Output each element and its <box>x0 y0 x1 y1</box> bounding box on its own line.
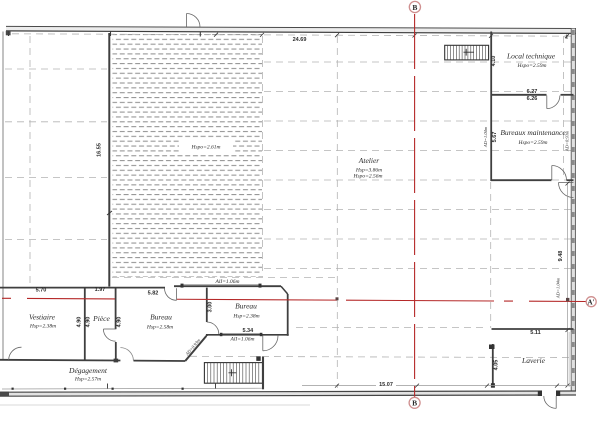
svg-text:1.97: 1.97 <box>95 287 106 293</box>
svg-text:B: B <box>412 3 417 12</box>
svg-text:5.82: 5.82 <box>148 291 159 297</box>
svg-text:4.90: 4.90 <box>116 317 122 328</box>
svg-text:4.90: 4.90 <box>77 317 83 328</box>
svg-text:Pièce: Pièce <box>92 314 110 323</box>
svg-text:9.48: 9.48 <box>558 251 564 262</box>
svg-text:6.27: 6.27 <box>527 89 538 95</box>
svg-text:B: B <box>412 399 417 408</box>
svg-text:4.05: 4.05 <box>494 360 500 371</box>
svg-text:Local technique: Local technique <box>506 52 556 61</box>
svg-text:3.00: 3.00 <box>207 302 213 313</box>
svg-text:Laverie: Laverie <box>521 356 546 365</box>
svg-text:16.55: 16.55 <box>97 143 103 157</box>
svg-text:AD=0.93m: AD=0.93m <box>565 130 570 152</box>
svg-text:AlI=1.06m: AlI=1.06m <box>229 337 254 343</box>
svg-text:A': A' <box>588 298 595 306</box>
svg-text:5.70: 5.70 <box>36 288 47 294</box>
svg-text:Hsp=2.38m: Hsp=2.38m <box>29 324 56 330</box>
svg-text:Hsp=2.57m: Hsp=2.57m <box>74 377 101 383</box>
svg-text:AD=1.04m: AD=1.04m <box>556 277 561 299</box>
svg-text:4.90: 4.90 <box>86 317 92 328</box>
svg-text:15.07: 15.07 <box>379 382 393 388</box>
svg-text:Hsp=2.58m: Hsp=2.58m <box>146 325 173 331</box>
svg-text:5.11: 5.11 <box>530 330 540 336</box>
svg-text:Hspo=2.59m: Hspo=2.59m <box>517 63 547 69</box>
svg-text:AlI=1.06m: AlI=1.06m <box>214 279 239 285</box>
svg-text:AD=1.04m: AD=1.04m <box>483 126 488 148</box>
svg-text:Bureau: Bureau <box>235 302 257 311</box>
svg-text:Hspo=2.61m: Hspo=2.61m <box>191 145 221 151</box>
svg-text:5.67: 5.67 <box>492 132 498 143</box>
svg-text:Hspo=2.56m: Hspo=2.56m <box>353 174 383 180</box>
svg-text:Vestiaire: Vestiaire <box>29 313 56 322</box>
svg-text:Hsp=2.38m: Hsp=2.38m <box>232 314 259 320</box>
svg-text:Atelier: Atelier <box>358 156 379 165</box>
svg-text:6.26: 6.26 <box>527 96 538 102</box>
svg-text:24.69: 24.69 <box>293 37 307 43</box>
svg-text:Dégagement: Dégagement <box>68 366 108 375</box>
svg-text:Bureaux maintenance: Bureaux maintenance <box>500 128 566 137</box>
svg-text:4.10: 4.10 <box>491 56 497 67</box>
svg-text:5.34: 5.34 <box>242 328 254 334</box>
svg-text:Hspo=2.59m: Hspo=2.59m <box>518 140 548 146</box>
svg-text:Bureau: Bureau <box>150 313 172 322</box>
